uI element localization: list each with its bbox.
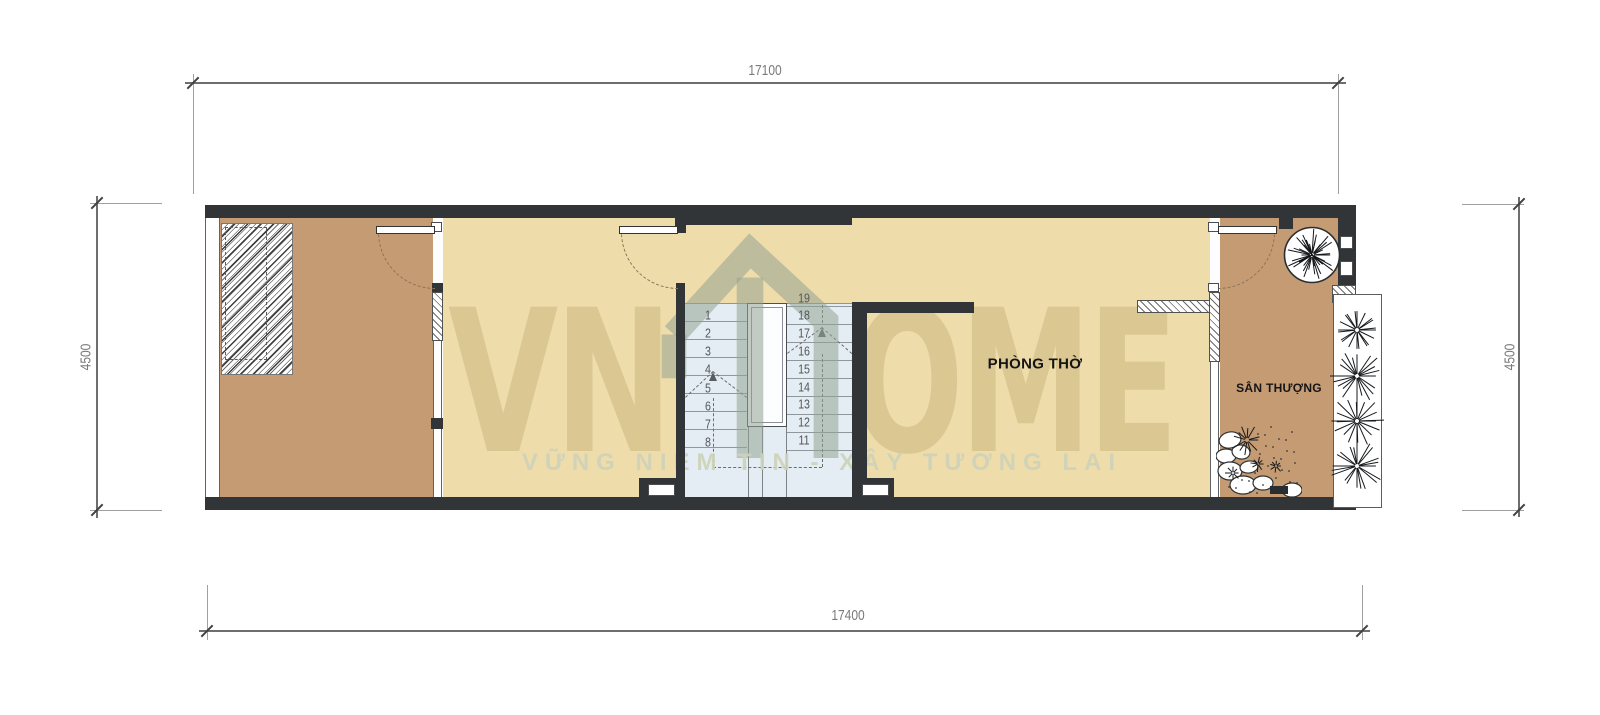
extension-line xyxy=(1462,510,1524,511)
spiky-plant-icon xyxy=(1329,438,1385,494)
extension-line xyxy=(193,74,194,194)
shrub-icon xyxy=(1224,464,1242,482)
dimension-top-value: 17100 xyxy=(748,62,781,79)
right-wall-window xyxy=(1340,261,1353,276)
terrace-label: SÂN THƯỢNG xyxy=(1236,381,1322,395)
stair-step-number: 6 xyxy=(705,398,711,413)
stair-step-number: 18 xyxy=(798,308,810,323)
extension-line xyxy=(90,510,162,511)
floor-plan-canvas: 12345678191817161514131211 VN OME VỮNG N… xyxy=(0,0,1600,715)
door-leaf xyxy=(1218,226,1277,234)
extension-line xyxy=(1462,204,1524,205)
stair-step-number: 7 xyxy=(705,416,711,431)
stair-step-number: 17 xyxy=(798,326,810,341)
door-leaf xyxy=(619,226,678,234)
stair-step-number: 13 xyxy=(798,397,810,412)
stair-step-number: 15 xyxy=(798,361,810,376)
worship-room-hatch-arm xyxy=(1137,300,1215,313)
watermark-tagline: VỮNG NIỀM TIN - XÂY TƯƠNG LAI xyxy=(522,449,1122,477)
worship-room-wall-arm xyxy=(852,302,974,313)
wall-label xyxy=(1270,486,1288,494)
shrub-icon xyxy=(1268,458,1284,474)
door-jamb xyxy=(1208,283,1219,292)
door-leaf xyxy=(376,226,435,234)
divider-wall-seg xyxy=(431,418,443,429)
dimension-right-value: 4500 xyxy=(1502,344,1519,371)
shrub-icon xyxy=(1229,422,1265,458)
left-wall-window xyxy=(205,218,220,497)
dimension-line-left xyxy=(96,196,98,518)
divider-window xyxy=(433,429,442,497)
stair-step-number: 16 xyxy=(798,343,810,358)
stair-right-wall xyxy=(852,302,867,497)
stair-step-number: 14 xyxy=(798,379,810,394)
pier-window xyxy=(862,484,889,496)
dimension-left-value: 4500 xyxy=(78,344,95,371)
void-dashed-outline xyxy=(225,227,267,360)
terrace-divider-hatch xyxy=(1209,292,1220,362)
divider-hatch-wall xyxy=(432,292,443,341)
shrub-icon xyxy=(1249,455,1267,473)
stair-step-number: 2 xyxy=(705,326,711,341)
tree-icon xyxy=(1283,226,1341,284)
worship-room-label: PHÒNG THỜ xyxy=(988,356,1083,373)
top-wall-jog xyxy=(678,211,852,225)
extension-line xyxy=(1338,74,1339,194)
stair-step-number: 11 xyxy=(798,432,809,447)
stair-step-number: 12 xyxy=(798,415,810,430)
stair-step-number: 5 xyxy=(705,380,711,395)
dimension-line-top xyxy=(185,82,1346,84)
stair-step-number: 4 xyxy=(705,362,711,377)
pier-window xyxy=(648,484,675,496)
divider-window xyxy=(433,341,442,418)
dimension-bottom-value: 17400 xyxy=(831,607,864,624)
bottom-wall xyxy=(205,497,1356,510)
stair-step-number: 3 xyxy=(705,344,711,359)
stair-step-number: 19 xyxy=(798,290,810,305)
dimension-line-bottom xyxy=(199,630,1370,632)
stair-step-number: 8 xyxy=(705,435,711,450)
stair-step-number: 1 xyxy=(705,308,711,323)
extension-line xyxy=(90,203,162,204)
stair-left-wall xyxy=(676,283,685,497)
right-wall-window xyxy=(1340,236,1353,249)
